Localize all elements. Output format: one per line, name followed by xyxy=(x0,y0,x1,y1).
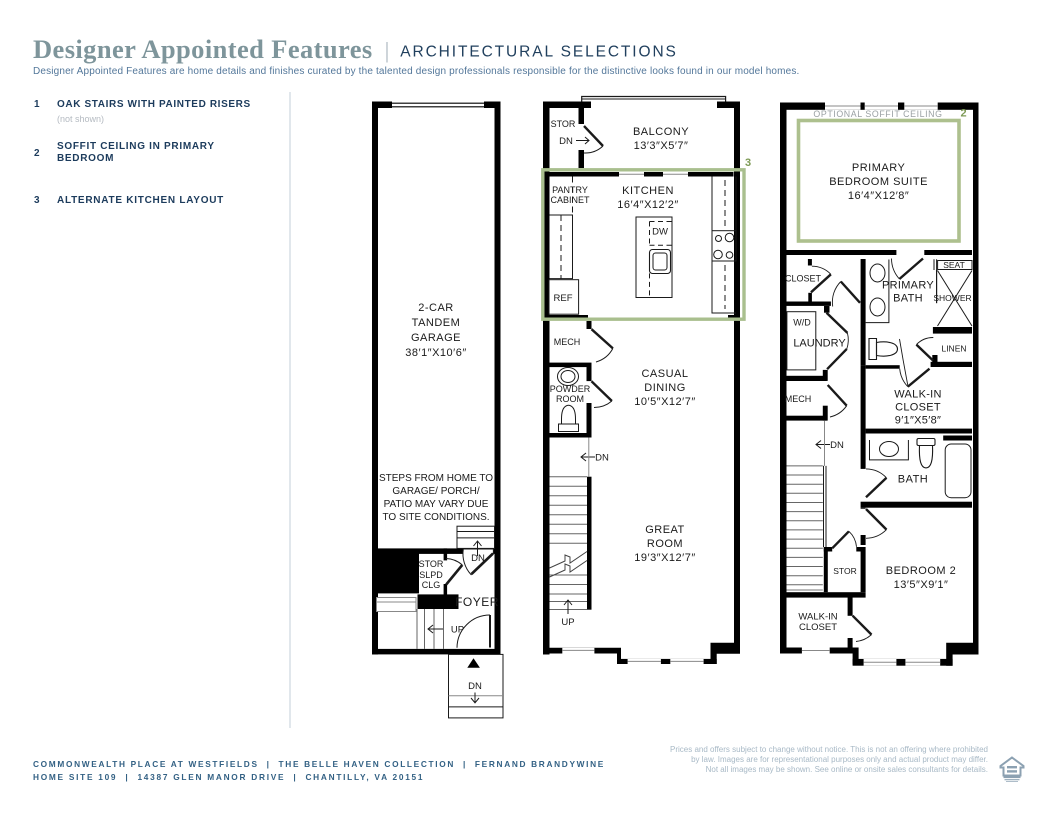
svg-text:38′1″X10′6″: 38′1″X10′6″ xyxy=(405,347,466,359)
svg-text:DN: DN xyxy=(471,553,485,564)
svg-text:STOR: STOR xyxy=(833,566,856,576)
svg-text:STOR: STOR xyxy=(551,119,576,129)
svg-text:UP: UP xyxy=(561,617,574,628)
svg-text:BEDROOM 2: BEDROOM 2 xyxy=(886,565,957,577)
svg-text:DN: DN xyxy=(830,440,844,451)
svg-text:STEPS FROM HOME TO: STEPS FROM HOME TO xyxy=(379,473,493,484)
svg-text:16′4″X12′8″: 16′4″X12′8″ xyxy=(848,190,909,202)
svg-text:13′5″X9′1″: 13′5″X9′1″ xyxy=(894,579,949,591)
svg-text:BATH: BATH xyxy=(893,292,923,304)
svg-text:10′5″X12′7″: 10′5″X12′7″ xyxy=(634,396,695,408)
svg-text:CLG: CLG xyxy=(422,580,441,590)
svg-text:STOR: STOR xyxy=(419,559,444,569)
svg-text:BEDROOM SUITE: BEDROOM SUITE xyxy=(829,176,928,188)
svg-text:PANTRY: PANTRY xyxy=(552,185,588,195)
svg-text:PRIMARY: PRIMARY xyxy=(852,162,906,174)
svg-text:LINEN: LINEN xyxy=(941,343,966,353)
svg-text:BALCONY: BALCONY xyxy=(633,126,689,138)
svg-text:SHOWER: SHOWER xyxy=(933,293,971,303)
svg-text:DINING: DINING xyxy=(644,382,686,394)
svg-text:BATH: BATH xyxy=(898,474,929,486)
svg-text:ROOM: ROOM xyxy=(647,538,683,550)
svg-text:MECH: MECH xyxy=(785,394,812,404)
svg-text:2-CAR: 2-CAR xyxy=(418,302,454,314)
svg-text:OPTIONAL SOFFIT CEILING: OPTIONAL SOFFIT CEILING xyxy=(813,109,942,119)
svg-text:CLOSET: CLOSET xyxy=(785,274,822,284)
svg-text:LAUNDRY: LAUNDRY xyxy=(793,338,846,350)
svg-text:SLPD: SLPD xyxy=(419,570,443,580)
svg-text:W/D: W/D xyxy=(793,318,811,328)
svg-text:DN: DN xyxy=(559,136,573,147)
svg-text:SEAT: SEAT xyxy=(943,260,965,270)
svg-text:REF: REF xyxy=(554,293,573,304)
svg-text:PATIO MAY VARY DUE: PATIO MAY VARY DUE xyxy=(384,499,489,510)
svg-text:UP: UP xyxy=(451,625,464,636)
svg-text:CABINET: CABINET xyxy=(550,195,590,205)
svg-text:2: 2 xyxy=(960,108,966,120)
svg-text:DN: DN xyxy=(468,681,482,692)
svg-text:9′1″X5′8″: 9′1″X5′8″ xyxy=(895,414,941,426)
svg-text:13′3″X5′7″: 13′3″X5′7″ xyxy=(634,140,689,152)
svg-text:TO SITE CONDITIONS.: TO SITE CONDITIONS. xyxy=(382,512,489,523)
svg-text:CASUAL: CASUAL xyxy=(641,368,688,380)
svg-text:PRIMARY: PRIMARY xyxy=(882,279,934,291)
svg-text:GARAGE/ PORCH/: GARAGE/ PORCH/ xyxy=(392,486,479,497)
svg-text:ROOM: ROOM xyxy=(556,394,584,404)
svg-text:GREAT: GREAT xyxy=(645,524,685,536)
svg-text:3: 3 xyxy=(745,157,751,169)
svg-text:CLOSET: CLOSET xyxy=(895,401,941,413)
svg-text:GARAGE: GARAGE xyxy=(411,332,461,344)
svg-text:POWDER: POWDER xyxy=(550,384,591,394)
svg-text:TANDEM: TANDEM xyxy=(412,317,461,329)
svg-text:WALK-IN: WALK-IN xyxy=(894,388,942,400)
svg-text:FOYER: FOYER xyxy=(455,595,499,609)
svg-text:DW: DW xyxy=(652,227,668,238)
svg-text:MECH: MECH xyxy=(554,337,581,347)
svg-text:19′3″X12′7″: 19′3″X12′7″ xyxy=(634,552,695,564)
svg-text:WALK-IN: WALK-IN xyxy=(798,612,837,623)
svg-text:CLOSET: CLOSET xyxy=(799,622,837,633)
svg-text:KITCHEN: KITCHEN xyxy=(622,185,674,197)
svg-text:DN: DN xyxy=(595,453,609,464)
svg-text:16′4″X12′2″: 16′4″X12′2″ xyxy=(617,199,678,211)
